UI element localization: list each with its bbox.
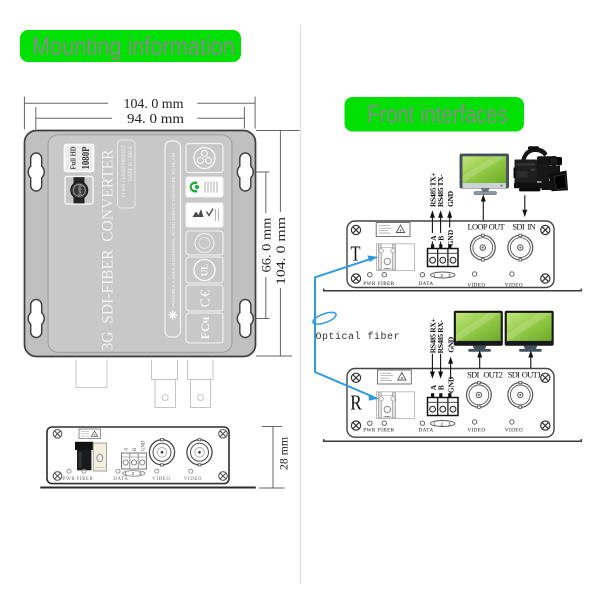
- svg-text:OUT1: OUT1: [522, 370, 541, 380]
- svg-text:FIBER: FIBER: [378, 281, 395, 287]
- svg-text:DATA: DATA: [418, 281, 433, 287]
- svg-text:RS485 RX-: RS485 RX-: [436, 320, 445, 354]
- svg-text:Mounting information: Mounting information: [32, 31, 235, 61]
- svg-text:Front interfaces: Front interfaces: [367, 99, 508, 129]
- svg-text:PWR: PWR: [63, 477, 76, 482]
- svg-text:SDI: SDI: [467, 370, 479, 380]
- svg-text:DATA: DATA: [113, 477, 128, 482]
- svg-text:OUT2: OUT2: [483, 370, 502, 380]
- svg-text:FIBER: FIBER: [76, 477, 93, 482]
- svg-text:GND: GND: [446, 190, 455, 207]
- svg-text:VIDEO: VIDEO: [467, 428, 485, 434]
- svg-text:VIDEO: VIDEO: [505, 428, 523, 434]
- svg-text:B: B: [437, 385, 446, 390]
- svg-text:Optical fiber: Optical fiber: [316, 331, 400, 343]
- svg-text:1 2 3: 1 2 3: [433, 421, 453, 427]
- svg-text:1 2 3: 1 2 3: [124, 471, 143, 476]
- svg-text:VIDEO: VIDEO: [467, 283, 485, 289]
- svg-text:B: B: [437, 236, 446, 241]
- svg-text:FIBER: FIBER: [378, 428, 395, 434]
- svg-text:66. 0 mm: 66. 0 mm: [260, 217, 274, 272]
- svg-text:28 mm: 28 mm: [279, 437, 291, 470]
- svg-text:GND: GND: [142, 440, 147, 451]
- svg-text:SWPU: SWPU: [78, 185, 83, 196]
- svg-text:PWR: PWR: [363, 428, 376, 434]
- svg-text:94. 0 mm: 94. 0 mm: [127, 111, 185, 126]
- svg-text:DATA: DATA: [418, 428, 433, 434]
- svg-text:VIDEO: VIDEO: [152, 477, 170, 482]
- svg-text:CLASS 1 LASER PRODUCT: CLASS 1 LASER PRODUCT: [122, 145, 127, 197]
- svg-text:IN: IN: [527, 222, 535, 232]
- svg-text:OUT: OUT: [489, 222, 506, 232]
- svg-text:MADE IN CHINA: MADE IN CHINA: [129, 146, 134, 181]
- svg-text:104. 0 mm: 104. 0 mm: [124, 96, 185, 111]
- svg-text:GND: GND: [446, 229, 455, 246]
- svg-text:FCч: FCч: [198, 316, 212, 339]
- svg-text:104. 0 mm: 104. 0 mm: [274, 217, 288, 285]
- svg-text:C€: C€: [198, 289, 213, 308]
- svg-text:SDI: SDI: [508, 370, 520, 380]
- svg-text:SDI: SDI: [512, 222, 524, 232]
- svg-text:VIDEO: VIDEO: [184, 477, 202, 482]
- svg-text:1080P: 1080P: [81, 147, 92, 170]
- svg-text:1 2 3: 1 2 3: [433, 273, 453, 279]
- svg-text:Full HD: Full HD: [70, 147, 78, 170]
- svg-text:PWR: PWR: [363, 281, 376, 287]
- svg-text:LOOP: LOOP: [467, 222, 487, 232]
- svg-text:3G SDI-FIBER CONVERTER: 3G SDI-FIBER CONVERTER: [100, 149, 117, 351]
- svg-text:RS485 TX-: RS485 TX-: [436, 174, 445, 207]
- svg-text:B: B: [133, 448, 138, 451]
- svg-text:R: R: [350, 392, 362, 415]
- svg-text:A: A: [125, 447, 130, 451]
- svg-text:VIDEO: VIDEO: [505, 283, 523, 289]
- svg-text:UL: UL: [200, 264, 210, 277]
